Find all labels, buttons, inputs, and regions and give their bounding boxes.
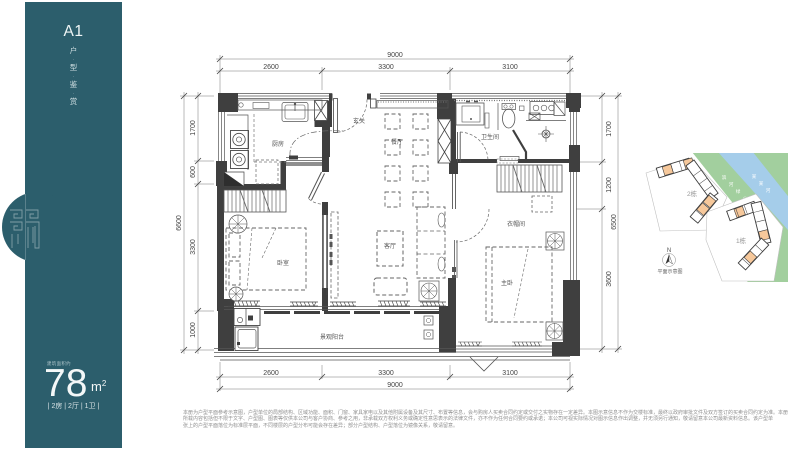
svg-text:600: 600 — [190, 166, 197, 178]
svg-text:6500: 6500 — [611, 214, 618, 230]
svg-text:绿: 绿 — [736, 188, 741, 194]
svg-text:3300: 3300 — [378, 64, 394, 71]
svg-text:客厅: 客厅 — [384, 242, 396, 250]
svg-text:河: 河 — [729, 181, 734, 187]
svg-text:9000: 9000 — [387, 52, 403, 59]
svg-text:2600: 2600 — [263, 370, 279, 377]
svg-text:卫生间: 卫生间 — [481, 133, 499, 141]
svg-text:1000: 1000 — [190, 322, 197, 338]
svg-text:2600: 2600 — [263, 64, 279, 71]
svg-text:1栋: 1栋 — [736, 236, 747, 245]
svg-text:9000: 9000 — [387, 382, 403, 389]
svg-text:6600: 6600 — [176, 215, 183, 231]
svg-text:3600: 3600 — [606, 271, 613, 287]
svg-text:1700: 1700 — [190, 120, 197, 136]
svg-text:3100: 3100 — [502, 64, 518, 71]
svg-text:N: N — [667, 248, 671, 254]
svg-text:1200: 1200 — [606, 177, 613, 193]
svg-text:玄关: 玄关 — [353, 117, 365, 125]
svg-text:卧室: 卧室 — [277, 259, 289, 267]
svg-text:餐厅: 餐厅 — [391, 138, 403, 146]
svg-text:平面示意图: 平面示意图 — [657, 268, 682, 275]
svg-text:3300: 3300 — [378, 370, 394, 377]
svg-text:2栋: 2栋 — [687, 189, 698, 198]
svg-text:衣帽间: 衣帽间 — [507, 220, 525, 228]
svg-text:3300: 3300 — [190, 239, 197, 255]
svg-text:河: 河 — [766, 187, 771, 193]
svg-text:3100: 3100 — [502, 370, 518, 377]
svg-text:主卧: 主卧 — [501, 279, 513, 287]
svg-text:景观阳台: 景观阳台 — [320, 333, 344, 341]
svg-text:1700: 1700 — [606, 121, 613, 137]
svg-text:厨房: 厨房 — [272, 140, 284, 148]
svg-text:滨: 滨 — [722, 174, 727, 181]
